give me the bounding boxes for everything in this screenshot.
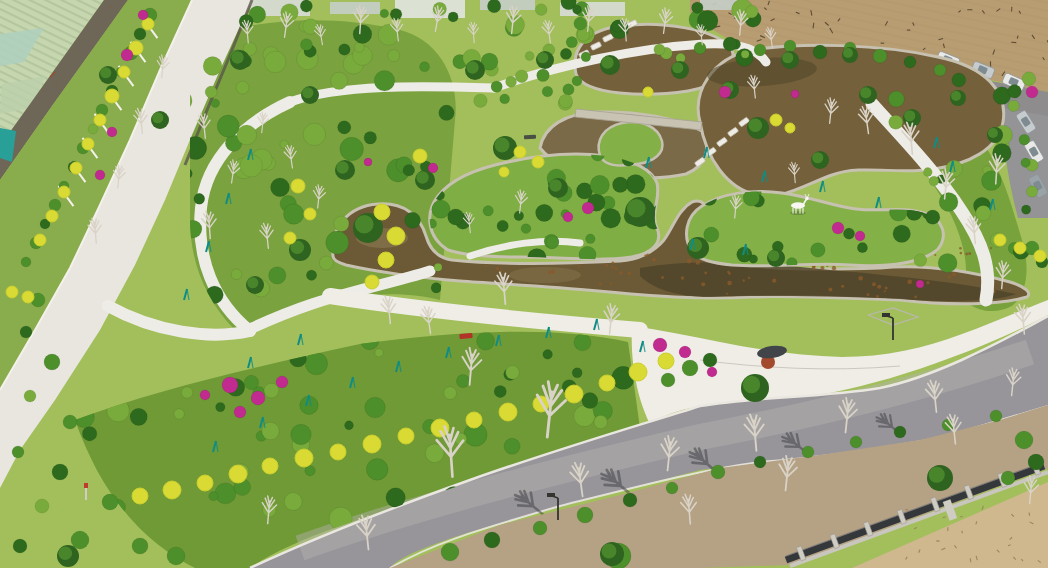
bush <box>850 436 862 448</box>
bush <box>723 37 737 51</box>
water-fleck <box>687 259 692 264</box>
bush <box>1008 85 1022 99</box>
bush <box>594 415 607 428</box>
water-fleck <box>965 253 968 256</box>
bush <box>439 105 454 120</box>
yellow-hedge <box>229 465 247 483</box>
speck <box>1017 36 1018 39</box>
tree-canopy-highlight <box>466 61 478 73</box>
yellow-hedge <box>466 412 482 428</box>
yellow-hedge <box>163 481 181 499</box>
bush <box>504 438 520 454</box>
bush <box>374 71 395 92</box>
bush <box>483 206 493 216</box>
bush <box>981 171 1001 191</box>
water-fleck <box>948 275 951 278</box>
tree-canopy-highlight <box>929 467 945 483</box>
bush <box>694 42 706 54</box>
tree-canopy-highlight <box>843 48 853 58</box>
yellow-hedge <box>94 114 106 126</box>
bush <box>353 25 372 44</box>
bush <box>514 211 524 221</box>
bush <box>305 352 327 374</box>
bush <box>952 73 966 87</box>
bush <box>754 456 766 468</box>
bush <box>271 178 290 197</box>
bush <box>132 538 148 554</box>
water-fleck <box>599 283 602 286</box>
bush <box>174 409 184 419</box>
bush <box>754 44 766 56</box>
bush <box>857 243 867 253</box>
bush <box>1021 205 1030 214</box>
upper-left-garden-ground <box>190 20 456 330</box>
bush <box>390 8 402 20</box>
bush <box>20 326 32 338</box>
bush <box>269 267 286 284</box>
bush <box>181 387 192 398</box>
bush <box>893 225 911 243</box>
water-fleck <box>876 295 879 298</box>
yellow-hedge <box>365 275 379 289</box>
bougainvillea <box>855 231 865 241</box>
water-fleck <box>877 285 881 289</box>
bougainvillea <box>234 406 246 418</box>
bush <box>873 49 887 63</box>
water-fleck <box>841 285 844 288</box>
water-fleck <box>628 272 632 276</box>
bush <box>612 177 628 193</box>
water-fleck <box>959 247 962 250</box>
water-fleck <box>652 258 656 262</box>
bush <box>211 99 219 107</box>
bush <box>572 5 581 14</box>
bush <box>21 257 31 267</box>
bush <box>574 334 591 351</box>
bush <box>939 193 958 212</box>
bush <box>35 499 49 513</box>
bush <box>215 483 236 504</box>
bush <box>236 81 249 94</box>
water-fleck <box>619 271 623 275</box>
water-fleck <box>704 271 707 274</box>
bush <box>240 155 262 177</box>
bush <box>577 507 593 523</box>
speck <box>970 558 971 562</box>
deer-shadow <box>790 211 806 215</box>
water-fleck <box>968 252 971 255</box>
bougainvillea <box>107 127 117 137</box>
bush <box>525 52 534 61</box>
bush <box>904 56 916 68</box>
bush <box>364 131 377 144</box>
bush <box>1022 72 1036 86</box>
bush <box>339 44 351 56</box>
yellow-hedge <box>291 179 305 193</box>
bush <box>345 421 354 430</box>
bougainvillea <box>679 346 691 358</box>
bush <box>692 2 704 14</box>
bush <box>843 228 854 239</box>
tree-canopy-highlight <box>416 171 428 183</box>
bush <box>203 57 222 76</box>
water-fleck <box>610 282 612 284</box>
yellow-hedge <box>118 66 130 78</box>
bush <box>130 408 147 425</box>
bougainvillea <box>95 170 105 180</box>
bush <box>894 426 906 438</box>
bush <box>542 86 553 97</box>
speck <box>1029 513 1030 516</box>
bush <box>102 494 118 510</box>
bush <box>88 124 98 134</box>
water-fleck <box>611 265 614 268</box>
bush <box>574 17 587 30</box>
bush <box>572 76 582 86</box>
tree-canopy-highlight <box>601 56 613 68</box>
bougainvillea <box>653 338 667 352</box>
yellow-hedge <box>295 449 313 467</box>
bush <box>420 62 430 72</box>
bush <box>506 15 525 34</box>
north-islet <box>599 122 663 166</box>
bush <box>938 253 957 272</box>
tree-canopy-highlight <box>860 87 871 98</box>
yellow-hedge <box>994 234 1006 246</box>
tree-canopy-highlight <box>537 52 548 63</box>
bush <box>44 354 60 370</box>
water-fleck <box>696 260 701 265</box>
water-fleck <box>728 272 731 275</box>
water-fleck <box>914 296 917 299</box>
yellow-hedge <box>770 114 782 126</box>
water-fleck <box>496 267 500 271</box>
water-fleck <box>701 282 705 286</box>
bush <box>1001 471 1015 485</box>
bush <box>682 360 698 376</box>
yellow-hedge <box>262 458 278 474</box>
yellow-hedge <box>413 149 427 163</box>
bush <box>491 81 502 92</box>
bush <box>386 488 405 507</box>
bush <box>300 39 312 51</box>
bush <box>582 393 598 409</box>
bush <box>1008 100 1019 111</box>
bush <box>497 220 508 231</box>
bougainvillea <box>582 202 594 214</box>
bush <box>506 76 517 87</box>
bush <box>612 20 624 32</box>
bush <box>340 137 364 161</box>
tree-canopy-highlight <box>904 110 915 121</box>
deer-head <box>805 197 808 200</box>
tree-canopy-highlight <box>627 199 646 218</box>
bush <box>432 200 450 218</box>
yellow-hedge <box>374 204 390 220</box>
marker-pole-tip <box>84 483 88 488</box>
aerial-park-photo <box>0 0 1048 568</box>
bush <box>1015 431 1033 449</box>
water-fleck <box>726 293 728 295</box>
bush <box>365 397 386 418</box>
bush <box>300 0 312 12</box>
bush <box>1026 186 1037 197</box>
tree-canopy-highlight <box>549 179 561 191</box>
yellow-hedge <box>70 162 82 174</box>
bush <box>1019 134 1030 145</box>
yellow-hedge <box>629 363 647 381</box>
yellow-hedge <box>499 167 509 177</box>
bush <box>194 193 205 204</box>
bush <box>546 236 559 249</box>
bush <box>403 164 415 176</box>
bush <box>1028 454 1044 470</box>
bush <box>976 205 991 220</box>
bush <box>654 44 665 55</box>
bush <box>666 482 678 494</box>
bush <box>500 94 510 104</box>
bougainvillea <box>1026 86 1038 98</box>
bush <box>536 204 553 221</box>
bush <box>456 374 469 387</box>
bush <box>444 387 457 400</box>
bush <box>745 5 758 18</box>
tree-canopy-highlight <box>988 128 998 138</box>
yellow-hedge <box>82 138 94 150</box>
bush <box>380 9 389 18</box>
building <box>330 2 380 14</box>
yellow-hedge <box>565 385 583 403</box>
water-fleck <box>990 247 992 249</box>
aerial-park-photo-stage <box>0 0 1048 568</box>
yellow-hedge <box>499 403 517 421</box>
bush <box>661 373 675 387</box>
bush <box>209 492 218 501</box>
water-fleck <box>884 290 886 292</box>
water-fleck <box>907 279 912 284</box>
bush <box>71 531 89 549</box>
bush <box>704 227 719 242</box>
bougainvillea <box>916 280 924 288</box>
bougainvillea <box>563 212 573 222</box>
tree-canopy-highlight <box>495 138 510 153</box>
tree-canopy-highlight <box>602 544 617 559</box>
bush <box>231 269 242 280</box>
bush <box>264 51 286 73</box>
bougainvillea <box>707 367 717 377</box>
bush <box>244 375 258 389</box>
bush <box>703 353 717 367</box>
bush <box>784 40 796 52</box>
yellow-hedge <box>514 146 526 158</box>
bougainvillea <box>200 390 210 400</box>
water-fleck <box>960 252 963 255</box>
water-fleck <box>612 261 615 264</box>
yellow-hedge <box>6 286 18 298</box>
bush <box>216 402 225 411</box>
bush <box>811 243 825 257</box>
bush <box>926 210 940 224</box>
bush <box>888 91 904 107</box>
water-fleck <box>867 293 870 296</box>
bush <box>560 48 571 59</box>
bougainvillea <box>276 376 288 388</box>
bush <box>13 539 27 553</box>
bush <box>388 50 400 62</box>
tree-canopy-highlight <box>748 118 762 132</box>
tree-canopy-highlight <box>231 51 243 63</box>
bush <box>205 86 217 98</box>
lamp-head <box>882 313 890 317</box>
bush <box>474 94 488 108</box>
tree-canopy-highlight <box>782 52 793 63</box>
yellow-hedge <box>22 291 34 303</box>
bush <box>217 115 239 137</box>
bougainvillea <box>222 377 238 393</box>
tree-canopy-highlight <box>672 62 683 73</box>
bush <box>134 28 146 40</box>
bush <box>515 70 528 83</box>
bush <box>749 255 757 263</box>
bougainvillea <box>121 49 133 61</box>
bush <box>1021 158 1030 167</box>
yellow-hedge <box>532 156 544 168</box>
bush <box>563 84 574 95</box>
yellow-hedge <box>1014 242 1026 254</box>
bush <box>623 493 637 507</box>
bush <box>82 426 96 440</box>
bush <box>306 270 316 280</box>
water-fleck <box>748 277 751 280</box>
bush <box>487 0 501 13</box>
yellow-hedge <box>46 210 58 222</box>
bougainvillea <box>719 86 731 98</box>
bougainvillea <box>138 10 148 20</box>
yellow-hedge <box>643 87 653 97</box>
bougainvillea <box>428 163 438 173</box>
bush <box>334 216 349 231</box>
bush <box>291 424 312 445</box>
tree-canopy-highlight <box>58 546 72 560</box>
water-fleck <box>858 276 863 281</box>
deer-body <box>791 202 805 208</box>
water-fleck <box>885 286 888 289</box>
yellow-hedge <box>363 435 381 453</box>
bush <box>537 69 550 82</box>
yellow-hedge <box>387 227 405 245</box>
bush <box>566 37 577 48</box>
bush <box>559 94 572 107</box>
bush <box>441 543 459 561</box>
bush <box>49 199 61 211</box>
bush <box>506 366 520 380</box>
bush <box>12 446 24 458</box>
water-fleck <box>872 282 876 286</box>
bush <box>448 12 458 22</box>
speck <box>962 531 963 534</box>
tree-canopy-highlight <box>951 91 961 101</box>
bush <box>533 521 547 535</box>
bush <box>283 204 303 224</box>
yellow-hedge <box>378 252 394 268</box>
bush <box>929 176 939 186</box>
water-fleck <box>681 276 684 279</box>
yellow-hedge <box>105 89 119 103</box>
tree-canopy-highlight <box>302 87 313 98</box>
bush <box>284 493 302 511</box>
water-fleck <box>548 271 551 274</box>
yellow-hedge <box>785 123 795 133</box>
bush <box>590 175 609 194</box>
bush <box>711 465 725 479</box>
bush <box>626 175 645 194</box>
water-fleck <box>727 281 732 286</box>
bush <box>802 446 814 458</box>
water-fleck <box>829 288 833 292</box>
bush <box>889 115 903 129</box>
water-glint <box>509 267 581 283</box>
speck <box>813 23 814 29</box>
bush <box>543 350 553 360</box>
water-fleck <box>812 266 816 270</box>
bush <box>366 459 388 481</box>
tree-canopy-highlight <box>152 112 163 123</box>
bush <box>572 368 582 378</box>
bush <box>741 50 749 58</box>
speck <box>905 509 908 510</box>
yellow-hedge <box>1034 250 1046 262</box>
bush <box>477 332 495 350</box>
water-fleck <box>952 272 956 276</box>
yellow-hedge <box>398 428 414 444</box>
yellow-hedge <box>58 186 70 198</box>
bush <box>431 283 441 293</box>
water-fleck <box>485 265 487 267</box>
yellow-hedge <box>132 488 148 504</box>
tree-canopy-highlight <box>355 215 374 234</box>
bush <box>434 263 442 271</box>
bush <box>601 208 621 228</box>
tree-canopy-highlight <box>247 277 258 288</box>
water-fleck <box>934 254 936 256</box>
bush <box>354 42 364 52</box>
bougainvillea <box>364 158 372 166</box>
bush <box>484 532 500 548</box>
tree-canopy-highlight <box>743 376 760 393</box>
bush <box>326 231 349 254</box>
water-fleck <box>661 276 664 279</box>
tree-canopy-highlight <box>336 161 348 173</box>
bougainvillea <box>791 90 799 98</box>
bush <box>303 123 325 145</box>
water-fleck <box>772 279 776 283</box>
yellow-hedge <box>658 353 674 369</box>
tree-canopy-highlight <box>100 67 111 78</box>
lamp-head <box>547 493 555 497</box>
water-fleck <box>551 270 555 274</box>
water-fleck <box>743 279 745 281</box>
water-fleck <box>578 265 580 267</box>
bush <box>280 140 288 148</box>
bush <box>167 547 185 565</box>
yellow-hedge <box>34 234 46 246</box>
bush <box>581 52 591 62</box>
bush <box>586 234 596 244</box>
bush <box>375 349 383 357</box>
water-fleck <box>926 281 929 284</box>
water-fleck <box>614 267 617 270</box>
bush <box>914 254 927 267</box>
